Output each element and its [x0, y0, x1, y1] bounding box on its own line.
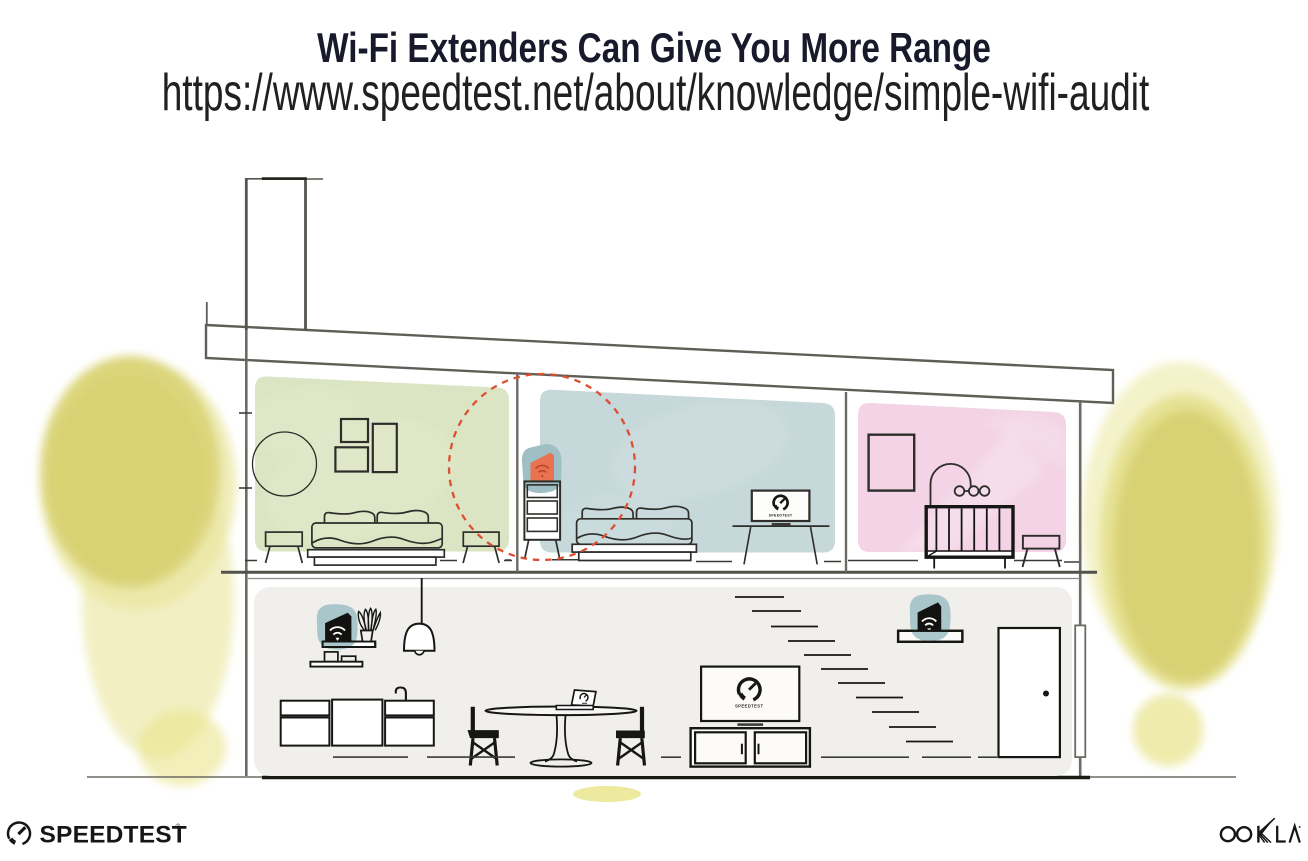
- svg-text:SPEEDTEST: SPEEDTEST: [735, 704, 764, 709]
- svg-text:SPEEDTEST: SPEEDTEST: [40, 821, 187, 848]
- svg-text:®: ®: [176, 823, 181, 831]
- svg-text:SPEEDTEST: SPEEDTEST: [769, 514, 793, 518]
- svg-text:https://www.speedtest.net/abou: https://www.speedtest.net/about/knowledg…: [162, 63, 1150, 122]
